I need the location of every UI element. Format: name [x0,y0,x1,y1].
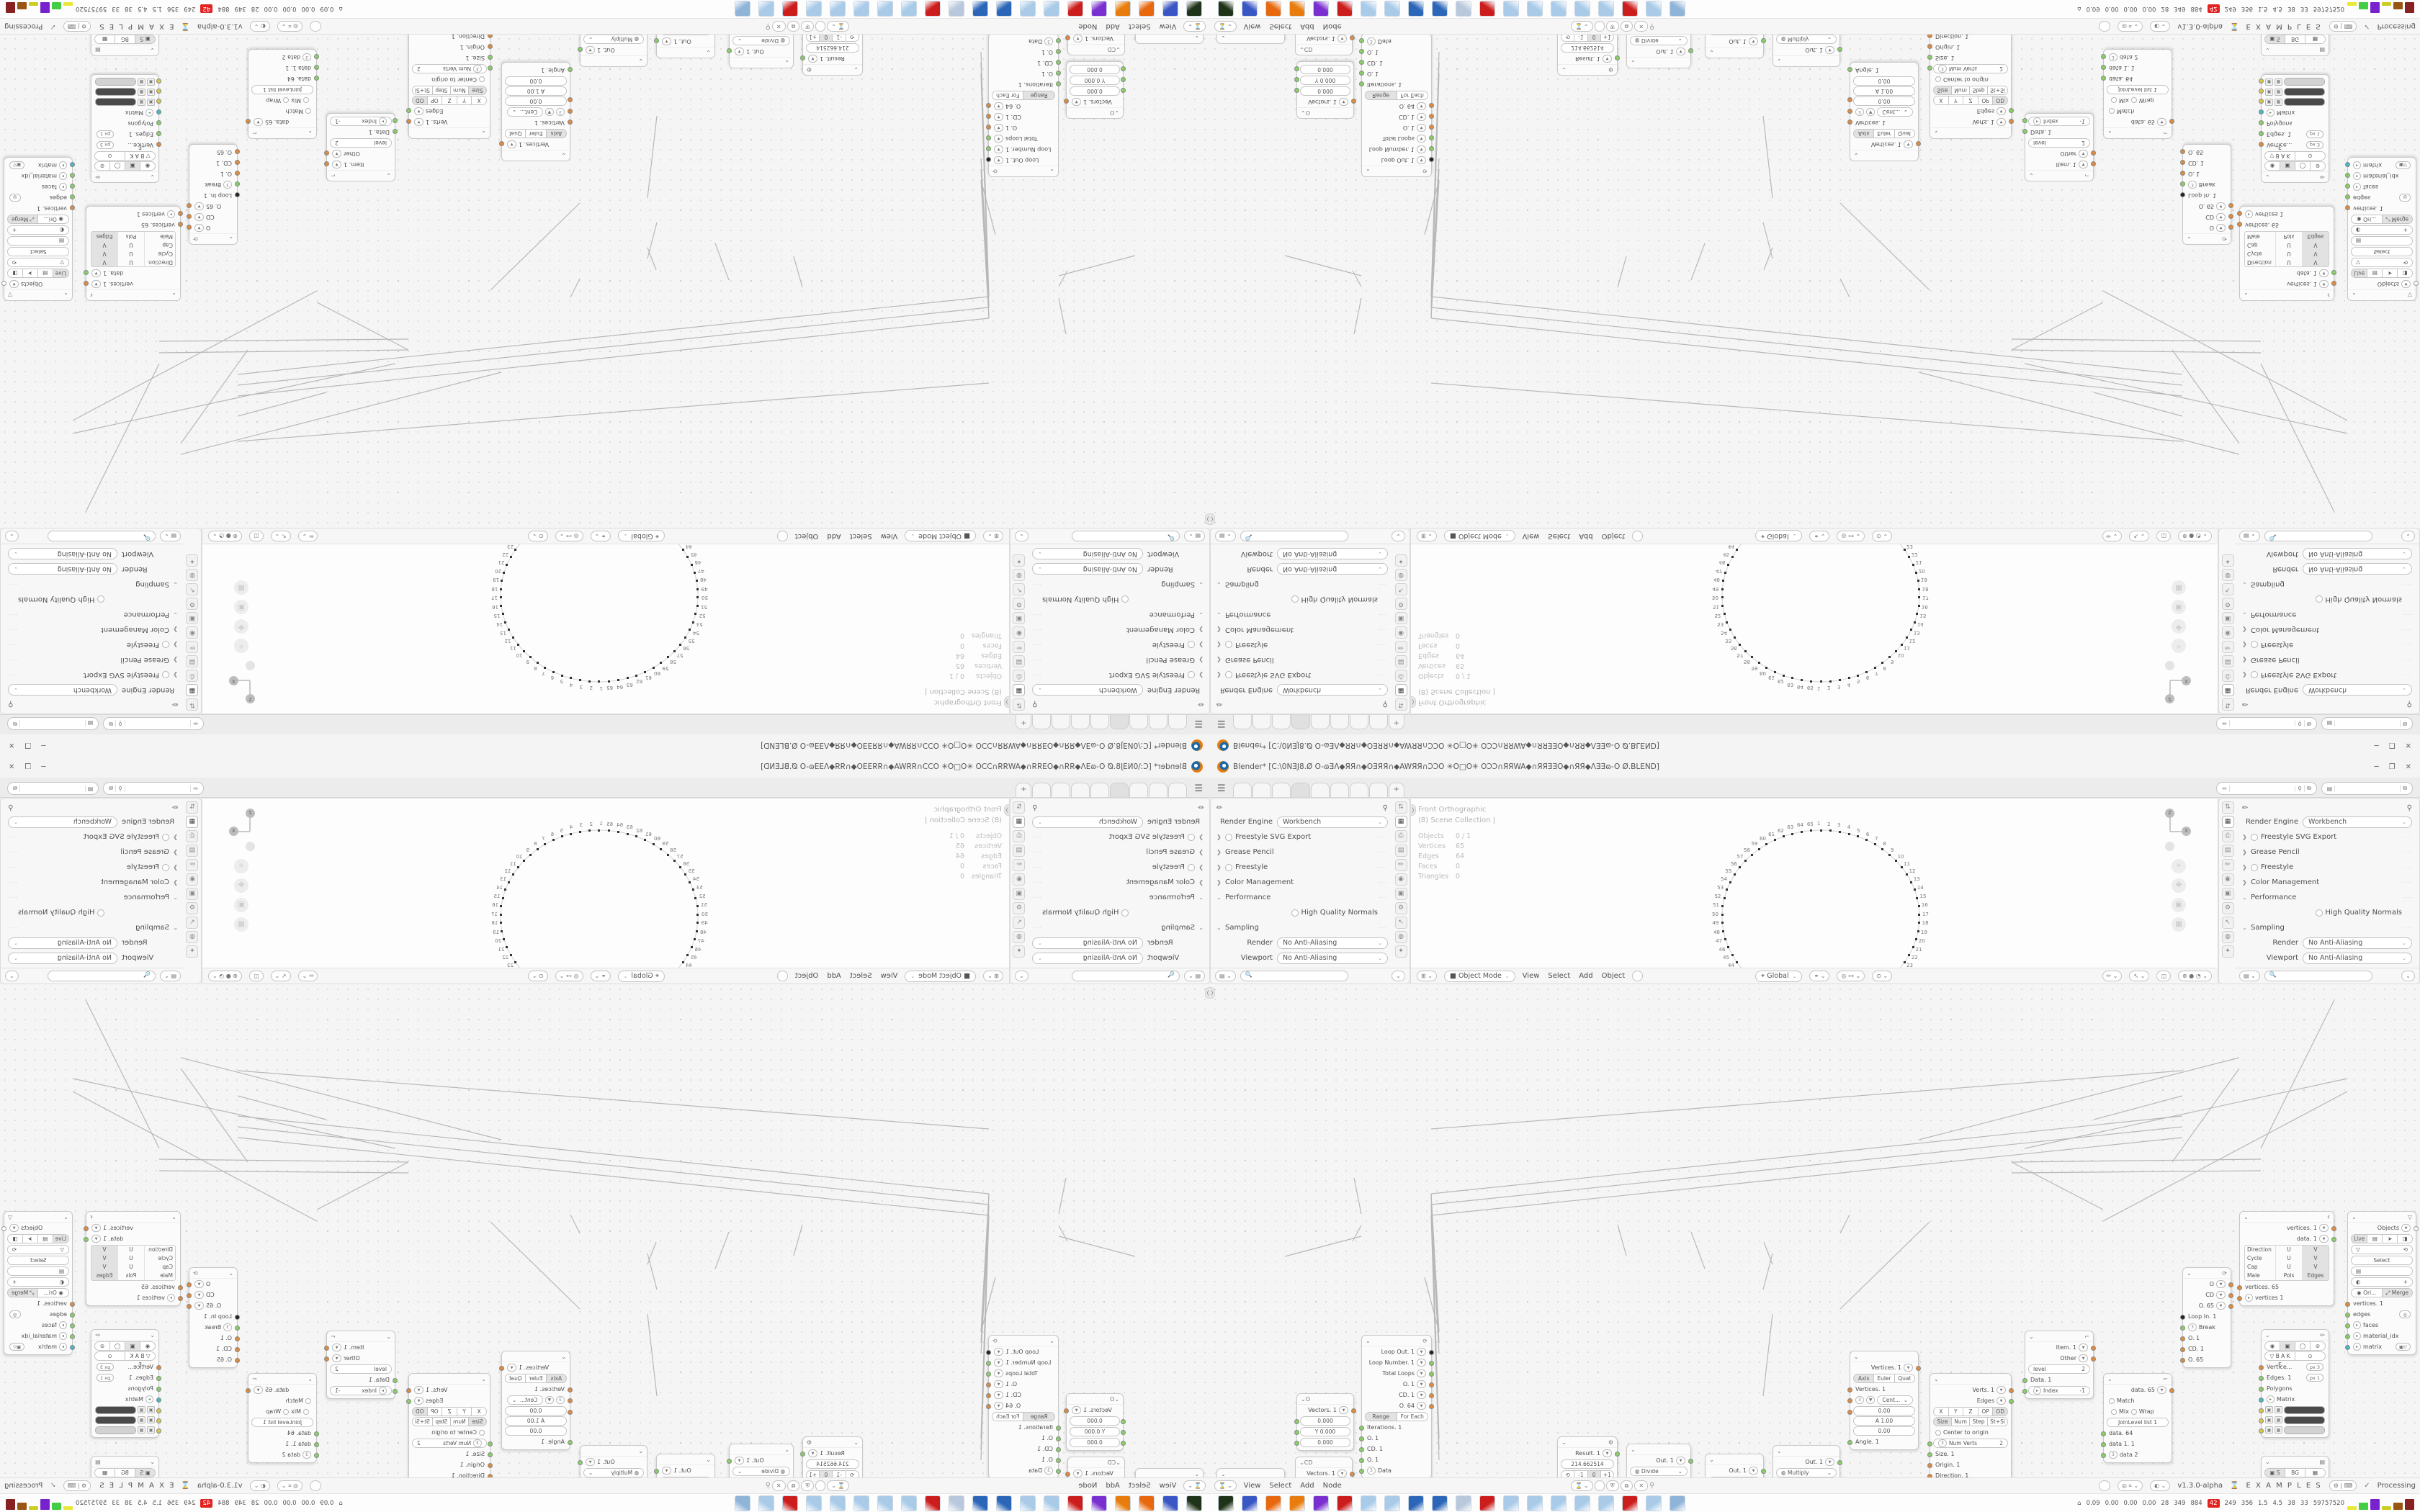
checkbox[interactable] [2251,864,2258,871]
pin-icon[interactable]: ⚲ [2295,786,2304,792]
node-button[interactable]: ⤢ Merge [7,215,38,224]
properties-tab-icon[interactable]: ⎙ [1013,670,1026,682]
node-button[interactable]: JoinLevel list 1 [251,85,313,94]
properties-tab-icon[interactable]: ⇅ [1013,698,1026,711]
panel-header[interactable]: Grease Pencil [1146,848,1195,856]
taskbar-icon-notepad[interactable] [1527,1,1543,17]
snap-group[interactable]: ◎ ⌗ ⌄ [277,21,302,32]
proportional-edit[interactable]: ⊙ ⌄ [528,971,548,981]
viewport-control-icon[interactable]: ▦ [234,917,248,932]
properties-tab-icon[interactable]: ▤ [1395,655,1407,667]
properties-tab-icon[interactable]: ⇅ [2222,698,2234,711]
node-button[interactable]: JoinLevel list 1 [2107,85,2169,94]
viewport-3d[interactable]: ❭ Front Orthographic (8) Scene Collectio… [202,798,1010,984]
node-button[interactable]: ⊙ [94,1351,125,1361]
node-button[interactable]: ⊘ [2311,1341,2326,1351]
panel-header[interactable]: Performance [1225,611,1270,618]
node-dropdown[interactable]: ◍ Divide⌄ [1630,1467,1688,1476]
node-rotate[interactable]: ⌄Vertices. 1▼AxisEulerQuatVertices. 13▼C… [1850,1351,1919,1450]
node-button[interactable]: OP [427,1407,442,1416]
node-line[interactable]: ⌄Verts. 1▼Edges▼XYZOPODSizeNumStepSt+SiC… [408,1373,490,1477]
node-dropdown[interactable]: ◍ Power 2⌄ [660,35,712,35]
render-engine-dropdown[interactable]: Workbench⌄ [1277,685,1388,696]
pin-icon[interactable]: ⚲ [8,804,13,812]
taskbar-icon-disc[interactable] [972,1495,988,1511]
node-number-field[interactable]: ▸Index-1 [2028,117,2090,126]
taskbar-icon-red-gear[interactable] [1337,1,1353,17]
color-swatch[interactable] [95,89,136,96]
panel-header[interactable]: Freestyle SVG Export [1235,833,1311,841]
node-vector-cd[interactable]: ⌄ CDVectors. 1▼1.000Y 0.0000.000 [1295,35,1353,55]
pin-icon[interactable]: ⚲ [1383,701,1388,708]
taskbar-icon-disc[interactable] [1408,1495,1424,1511]
panel-header[interactable]: Performance [1225,894,1270,901]
node-button[interactable]: ⟲ [846,35,859,42]
gizmo-dropdown[interactable]: ✏ ⌄ [298,971,318,981]
node-list-join[interactable]: ⌄⌐data. 65▼MatchMixWrapJoinLevel list 1d… [248,49,317,139]
panel-header[interactable]: Freestyle SVG Export [1109,671,1185,679]
taskbar-icon-calculator[interactable] [949,1,964,17]
editor-type-button[interactable]: ⊞ ⌄ [1417,971,1437,981]
panel-header[interactable]: Sampling [1225,924,1259,932]
node-button[interactable]: ⊙ [94,151,125,161]
workspace-tab[interactable] [1233,783,1252,797]
panel-header[interactable]: Freestyle [127,863,159,871]
workspace-tab[interactable] [1252,783,1271,797]
panel-header[interactable]: Performance [124,894,169,901]
panel-header[interactable]: Performance [1149,894,1195,901]
node-formula-result[interactable]: ⌄⚙Result. 1▼214.662514⟲-10+1 [1557,1436,1618,1477]
viewport-side-controls[interactable]: +✥▣▦ [2172,859,2186,932]
panel-header[interactable]: Freestyle SVG Export [1109,833,1185,841]
fake-user-icon[interactable]: ⛨ [801,21,814,32]
render-aa-dropdown[interactable]: No Anti-Aliasing⌄ [1032,937,1143,949]
taskbar-icon-notepad[interactable] [1020,1,1036,17]
node-math-power[interactable]: ⌄Out. 1▼◍ Power 2⌄x 1 [656,1454,715,1477]
menu-object[interactable]: Object [795,532,819,540]
node-button[interactable]: ➤ [22,269,37,278]
node-vector-cd[interactable]: ⌄ CDVectors. 1▼1.000Y 0.0000.000 [1067,1457,1125,1477]
panel-header[interactable]: Freestyle [1235,863,1268,871]
node-button[interactable]: ◯ [2295,1341,2311,1351]
search-input[interactable]: 🔍 [2264,531,2372,541]
search-input[interactable]: 🔍 [1072,531,1180,541]
viewport-aa-dropdown[interactable]: No Anti-Aliasing⌄ [1032,549,1143,560]
panel-header[interactable]: Grease Pencil [1225,848,1274,856]
menu-select[interactable]: Select [1129,1482,1151,1490]
properties-tab-icon[interactable]: ▦ [1013,816,1026,828]
node-number-field[interactable]: ◐+ [2351,1277,2413,1287]
node-math-power[interactable]: ⌄Out. 1▼◍ Power 2⌄x 1 [1705,1454,1764,1477]
checkbox[interactable] [2109,1398,2115,1404]
viewport-control-icon[interactable]: ▣ [2172,898,2186,912]
properties-tab-icon[interactable]: ◍ [2222,931,2234,943]
pin-icon[interactable]: ⚲ [1032,804,1037,812]
overlays-dropdown[interactable]: ↖ ⌄ [2129,531,2149,541]
node-button[interactable]: -1 [1574,1470,1587,1477]
workspace-tab[interactable] [1110,783,1129,797]
node-math-divide[interactable]: ⌄Out. 1▼◍ Divide⌄x 1y 1 [729,1444,794,1477]
taskbar-icon-notepad[interactable] [877,1495,893,1511]
properties-tab-icon[interactable]: ▣ [1395,612,1407,624]
taskbar-icon-notepad[interactable] [1551,1,1567,17]
taskbar-icon-notepad[interactable] [1361,1495,1376,1511]
node-button[interactable]: OP [1978,1407,1994,1416]
properties-tab-icon[interactable]: ⎙ [187,670,199,682]
node-loop-out[interactable]: ⌄⟳O▼CD▼O. 65▼Loop In. 13BreakO. 1CD. 1O.… [2182,1267,2231,1368]
node-line[interactable]: ⌄Verts. 1▼Edges▼XYZOPODSizeNumStepSt+SiC… [1930,35,2012,139]
panel-header[interactable]: Performance [2251,611,2296,618]
pivot-dropdown[interactable]: ⚭ ⌄ [1809,971,1829,981]
node-button[interactable]: For Each [992,91,1023,100]
node-rotate[interactable]: ⌄Vertices. 1▼AxisEulerQuatVertices. 13▼C… [501,62,570,161]
panel-header[interactable]: Freestyle [127,641,159,649]
copy-icon[interactable]: ⧉ [2304,785,2313,792]
taskbar-icon-purple-app[interactable] [1091,1495,1107,1511]
pin-icon[interactable]: ⚲ [116,721,125,727]
viewport-control-icon[interactable]: ▦ [2172,580,2186,595]
pivot-group[interactable]: ◐ ⌄ [2150,1480,2170,1491]
shading-buttons[interactable]: ⊕ ● ◔ ⌄ [208,531,242,541]
unlink-icon[interactable]: ✕ [772,21,786,32]
unlink-icon[interactable]: ✕ [772,1480,786,1491]
node-number-field[interactable]: ▽⟲ [2351,258,2413,267]
node-field[interactable]: 214.662514 [806,43,859,53]
node-button[interactable]: Quat [1895,129,1915,138]
scene-selector[interactable]: ✏ ⚲ ⧉ [103,717,203,730]
pin-icon[interactable]: ⚲ [1649,1482,1654,1490]
taskbar-icon-system-app[interactable] [1218,1495,1234,1511]
node-button[interactable]: 0 [1588,35,1601,42]
node-button[interactable]: St+Si [412,86,432,95]
properties-tab-icon[interactable]: ↖ [1013,917,1026,929]
node-number-field[interactable]: 3Num Verts2 [1933,64,2008,73]
properties-tab-icon[interactable]: ⎙ [1395,670,1407,682]
menu-view[interactable]: View [1244,22,1261,30]
menu-hamburger-icon[interactable]: ☰ [1194,783,1203,794]
node-button[interactable]: ⊘ [94,161,109,171]
close-button[interactable]: ✕ [2406,742,2411,750]
node-button[interactable]: Z [442,96,457,105]
node-vector-o[interactable]: ⌄ OVectors. 1▼0.000Y 0.0000.000 [1296,1393,1354,1451]
node-button[interactable]: Live [53,1234,69,1243]
menu-select[interactable]: Select [1129,22,1151,30]
node-button[interactable]: OP [427,96,442,105]
copy-icon[interactable]: ⧉ [2400,720,2409,727]
properties-tab-icon[interactable]: ✦ [1395,554,1407,567]
pivot-dropdown[interactable]: ⚭ ⌄ [591,971,611,981]
render-engine-dropdown[interactable]: Workbench⌄ [1032,816,1143,828]
node-button[interactable]: ⤢ Merge [2383,1288,2414,1297]
panel-header[interactable]: Performance [1149,611,1195,618]
viewport-aa-dropdown[interactable]: No Anti-Aliasing⌄ [1277,953,1388,964]
node-vector-o[interactable]: ⌄ OVectors. 1▼0.000Y 0.0000.000 [1296,61,1354,119]
node-button[interactable]: Step [432,86,450,95]
properties-tab-icon[interactable]: ⎙ [2222,830,2234,842]
taskbar-icon-purple-app[interactable] [1313,1,1329,17]
properties-tab-icon[interactable]: ✦ [187,945,199,958]
collapse-button[interactable]: ⌄ [5,531,19,541]
properties-tab-icon[interactable]: ⚙ [2222,598,2234,610]
taskbar-icon-notepad[interactable] [1020,1495,1036,1511]
node-button[interactable]: Select [2351,247,2413,256]
node-viewer-draw[interactable]: ⌄✏◉▣◯⊘▽ B A K E⊙Vertice...px 3Edges. 1px… [2261,74,2329,183]
node-loop-in[interactable]: ⌄⟳Loop Out. 1▼Loop Number. 1▼Total Loops… [988,1335,1059,1477]
properties-tab-icon[interactable]: ▦ [1395,816,1407,828]
properties-tab-icon[interactable]: ◉ [1395,626,1407,639]
node-button[interactable]: ▦ [2305,35,2326,44]
workspace-tab[interactable] [1168,715,1187,729]
menu-select[interactable]: Select [1269,1482,1291,1490]
node-dropdown[interactable]: ◍ Divide⌄ [1630,36,1688,45]
node-button[interactable]: Size [468,1417,487,1426]
properties-tab-icon[interactable]: ⇅ [2222,801,2234,814]
node-number-field[interactable]: level2 [2028,138,2090,148]
taskbar-icon-red-gear[interactable] [1067,1,1083,17]
properties-tab-icon[interactable]: ▦ [2222,684,2234,696]
viewport-control-icon[interactable]: ▣ [234,898,248,912]
properties-tab-icon[interactable]: ↖ [2222,917,2234,929]
node-field[interactable]: 0.000 [1070,86,1120,96]
axis-x[interactable]: X [229,676,238,685]
node-button[interactable]: ⟲ [1561,35,1574,42]
properties-tab-icon[interactable]: ↖ [1395,583,1407,595]
node-button[interactable]: -1 [833,1470,846,1477]
editor-type-button[interactable]: ▤ ⌄ [1184,531,1205,541]
node-button[interactable]: ⊘ [94,1341,109,1351]
pin-icon[interactable]: ⚲ [1383,804,1388,812]
panel-header[interactable]: Sampling [2251,924,2285,932]
checkbox[interactable] [479,1430,485,1436]
collapse-button[interactable]: ⌄ [2401,531,2415,541]
properties-tab-icon[interactable]: ◉ [1013,626,1026,639]
taskbar-icon-disc[interactable] [996,1495,1012,1511]
node-button[interactable]: Live [53,269,69,278]
checkbox[interactable] [2251,672,2258,679]
taskbar-icon-notepad[interactable] [758,1,774,17]
menu-hamburger-icon[interactable]: ☰ [1194,718,1203,729]
taskbar-icon-floppy-64[interactable] [1242,1495,1258,1511]
node-math-power[interactable]: ⌄Out. 1▼◍ Power 2⌄x 1 [1705,35,1764,58]
node-math-divide[interactable]: ⌄Out. 1▼◍ Divide⌄x 1y 1 [1626,35,1691,68]
node-list-item[interactable]: ⌄⌐Item. 1▼Other▼level2Data. 1▸Index-1 [326,113,395,181]
workspace-tab[interactable] [1330,715,1349,729]
snap-toggle[interactable]: ◎ ⊶ ⌄ [1837,971,1865,981]
node-list-item[interactable]: ⌄⌐Item. 1▼Other▼level2Data. 1▸Index-1 [2025,113,2094,181]
viewlayer-selector[interactable]: ▤ ⧉ [7,717,99,730]
snap-group[interactable]: ◎ ⌗ ⌄ [2117,1480,2143,1491]
node-loop-out[interactable]: ⌄⟳O▼CD▼O. 65▼Loop In. 13BreakO. 1CD. 1O.… [189,1267,238,1368]
checkbox[interactable] [305,109,311,114]
color-swatch[interactable] [95,99,136,107]
panel-header[interactable]: Color Management [101,626,169,634]
taskbar-icon-disc[interactable] [972,1,988,17]
node-button[interactable]: St+Si [1988,1417,2008,1426]
node-button[interactable]: Quat [505,129,525,138]
panel-header[interactable]: Grease Pencil [1225,656,1274,664]
editor-type-button[interactable]: ⌛ ⌄ [1183,1480,1206,1491]
panel-header[interactable]: Freestyle [2261,863,2293,871]
viewport-3d[interactable]: ❭ Front Orthographic (8) Scene Collectio… [1410,528,2218,714]
properties-tab-icon[interactable]: ⚙ [1013,902,1026,914]
taskbar-icon-red-gear[interactable] [925,1,941,17]
node-button[interactable]: ◨ [2398,269,2413,278]
editor-type-button[interactable]: ▤ ⌄ [160,531,181,541]
axis-z[interactable]: Z [246,694,255,703]
editor-type-button[interactable]: ▤ ⌄ [2239,531,2260,541]
viewport-control-icon[interactable]: + [2172,859,2186,873]
taskbar-icon-floppy-64[interactable] [1162,1495,1178,1511]
checkbox[interactable] [1225,834,1232,841]
workspace-tab[interactable] [1129,715,1148,729]
panel-header[interactable]: Sampling [1225,580,1259,588]
node-list-join[interactable]: ⌄⌐data. 65▼MatchMixWrapJoinLevel list 1d… [2103,1373,2172,1463]
properties-tab-icon[interactable]: ⚙ [1395,902,1407,914]
node-button[interactable]: Z [1963,96,1978,105]
checkbox[interactable] [2109,109,2115,114]
taskbar-icon-red-gear[interactable] [1337,1495,1353,1511]
node-button[interactable]: ▤ [2367,269,2383,278]
overlays-dropdown[interactable]: ↖ ⌄ [2129,971,2149,981]
node-button[interactable]: 0 [819,1470,832,1477]
node-formula-result[interactable]: ⌄⚙Result. 1▼214.662514⟲-10+1 [802,1436,863,1477]
menu-view[interactable]: View [1244,1482,1261,1490]
properties-tab-icon[interactable]: ◉ [2222,626,2234,639]
checkbox[interactable] [1188,834,1195,841]
search-input[interactable]: 🔍 [1072,971,1180,981]
update-buttons[interactable]: ⚙ | ⌨ [2329,21,2357,32]
taskbar-icon-disc[interactable] [1432,1,1448,17]
node-viewer-draw[interactable]: ⌄✏◉▣◯⊘▽ B A K E⊙Vertice...px 3Edges. 1px… [91,74,159,183]
pin-icon[interactable]: ⚲ [2407,804,2412,812]
node-button[interactable]: ◯ [2295,161,2311,171]
color-swatch[interactable] [95,1426,136,1434]
render-aa-dropdown[interactable]: No Anti-Aliasing⌄ [8,564,117,575]
workspace-tab[interactable] [1071,715,1090,729]
shading-buttons[interactable]: ⊕ ● ◔ ⌄ [208,971,242,981]
node-button[interactable]: X [471,96,487,105]
proportional-edit[interactable]: ⊙ ⌄ [1872,971,1892,981]
node-button[interactable]: ▽ B A K E [125,151,156,161]
collapse-button[interactable]: ⌄ [1391,971,1405,981]
properties-tab-icon[interactable]: ↖ [187,583,199,595]
node-button[interactable]: Num [1952,1417,1970,1426]
color-swatch[interactable] [95,1406,136,1414]
node-button[interactable]: 0 [819,35,832,42]
node-formula-result[interactable]: ⌄⚙Result. 1▼214.662514⟲-10+1 [1557,35,1618,76]
menu-add[interactable]: Add [827,532,841,540]
node-number-field[interactable]: ▤ [2351,236,2413,246]
node-line[interactable]: ⌄Verts. 1▼Edges▼XYZOPODSizeNumStepSt+SiC… [408,35,490,139]
viewport-aa-dropdown[interactable]: No Anti-Aliasing⌄ [2303,549,2412,560]
checkbox[interactable] [2251,834,2258,841]
node-button[interactable]: +1 [1601,35,1614,42]
node-button[interactable]: ◉ [140,161,156,171]
taskbar-icon-notepad[interactable] [1503,1495,1519,1511]
render-engine-dropdown[interactable]: Workbench⌄ [8,685,117,696]
node-vector-cd[interactable]: ⌄ CDVectors. 1▼1.000Y 0.0000.000 [1067,35,1125,55]
axis-x[interactable]: X [229,827,238,836]
color-swatch[interactable] [95,1416,136,1424]
gizmo-dropdown[interactable]: ✏ ⌄ [2102,971,2123,981]
properties-tab-icon[interactable]: ⚙ [1395,598,1407,610]
menu-view[interactable]: View [881,532,898,540]
node-field[interactable]: 214.662514 [1561,43,1614,53]
node-objects-in[interactable]: ⌄▽Objects▼Live▤➤◨▽⟲Select▤◐+◉ Ori...⤢ Me… [2347,157,2416,301]
taskbar-icon-disc[interactable] [1408,1,1424,17]
properties-tab-icon[interactable]: ⚙ [1013,598,1026,610]
node-math-multiply[interactable]: ⌄Out. 1▼◍ Multiply⌄x 1y 1 [580,35,647,67]
orientation-dropdown[interactable]: ⌖ Global⌄ [1755,971,1803,982]
shading-buttons[interactable]: ⊕ ● ◔ ⌄ [2178,531,2212,541]
viewport-control-icon[interactable]: ▦ [2172,917,2186,932]
scene-selector[interactable]: ✏ ⚲ ⧉ [103,782,203,795]
properties-tab-icon[interactable]: ⇅ [1395,801,1407,814]
panel-header[interactable]: Performance [2251,894,2296,901]
checkbox[interactable] [1225,864,1232,871]
node-number-field[interactable]: ▸Index-1 [2028,1386,2090,1395]
workspace-tab[interactable] [1350,783,1368,797]
checkbox[interactable] [2316,909,2323,917]
node-button[interactable]: ⤢ Merge [2383,215,2414,224]
workspace-tab[interactable] [1032,715,1051,729]
node-field[interactable]: 0.000 [1300,86,1350,96]
node-button[interactable]: +1 [1601,1470,1614,1477]
node-number-field[interactable]: 3Num Verts2 [1933,1439,2008,1448]
snap-toggle[interactable]: ◎ ⊶ ⌄ [555,531,583,541]
collapse-button[interactable]: ⌄ [2401,971,2415,981]
node-button[interactable]: ▣ [2280,1341,2295,1351]
checkbox[interactable] [1935,1430,1941,1436]
node-button[interactable]: ▣ S [135,35,156,44]
taskbar-icon-red-gear[interactable] [925,1495,941,1511]
viewport-control-icon[interactable]: ▣ [234,600,248,614]
node-dropdown[interactable]: ◍ Divide⌄ [732,36,790,45]
orientation-dropdown[interactable]: ⌖ Global⌄ [618,971,665,982]
node-button[interactable]: ▣ S [2264,1468,2285,1477]
node-button[interactable]: BG [115,35,135,44]
taskbar-icon-red-gear[interactable] [1479,1495,1495,1511]
node-button[interactable]: OP [1978,96,1994,105]
editor-type-button[interactable]: ⊞ ⌄ [1417,531,1437,541]
mode-dropdown[interactable]: ■ Object Mode⌄ [905,971,976,982]
panel-header[interactable]: Color Management [101,878,169,886]
mode-dropdown[interactable]: ■ Object Mode⌄ [905,531,976,542]
properties-tab-icon[interactable]: ▤ [2222,845,2234,857]
node-button[interactable]: OD [412,96,427,105]
node-list-join[interactable]: ⌄⌐data. 65▼MatchMixWrapJoinLevel list 1d… [248,1373,317,1463]
render-engine-dropdown[interactable]: Workbench⌄ [8,816,117,828]
node-math-divide[interactable]: ⌄Out. 1▼◍ Divide⌄x 1y 1 [729,35,794,68]
node-dropdown[interactable]: ◍ Multiply⌄ [1776,1468,1837,1477]
node-button[interactable]: St+Si [412,1417,432,1426]
taskbar-icon-notepad[interactable] [830,1495,846,1511]
panel-header[interactable]: Freestyle [1152,863,1185,871]
node-button[interactable]: Step [1970,86,1988,95]
taskbar-icon-red-gear[interactable] [782,1,798,17]
node-uv-connection[interactable]: ⌄♯vertices. 1▼data. 1▼DirectionUVCycleUV… [86,206,181,301]
node-number-int-64[interactable]: ⌄floatintƒ#▼3an int64 [1216,35,1285,44]
properties-tab-icon[interactable]: ▤ [187,655,199,667]
copy-icon[interactable]: ⧉ [1621,1480,1633,1491]
node-viewer-index[interactable]: ⌄▤▣ SBG▦▣▦▣▦▣▦verts. 1edges. 1▸faces▸mat… [91,35,159,56]
taskbar-icon-notepad[interactable] [901,1,917,17]
node-button[interactable]: ⟲ [1561,1470,1574,1477]
node-number-field[interactable]: level2 [2028,1364,2090,1374]
workspace-tab[interactable] [1330,783,1349,797]
menu-select[interactable]: Select [1269,22,1291,30]
node-field[interactable]: 0.000 [1070,1438,1120,1447]
